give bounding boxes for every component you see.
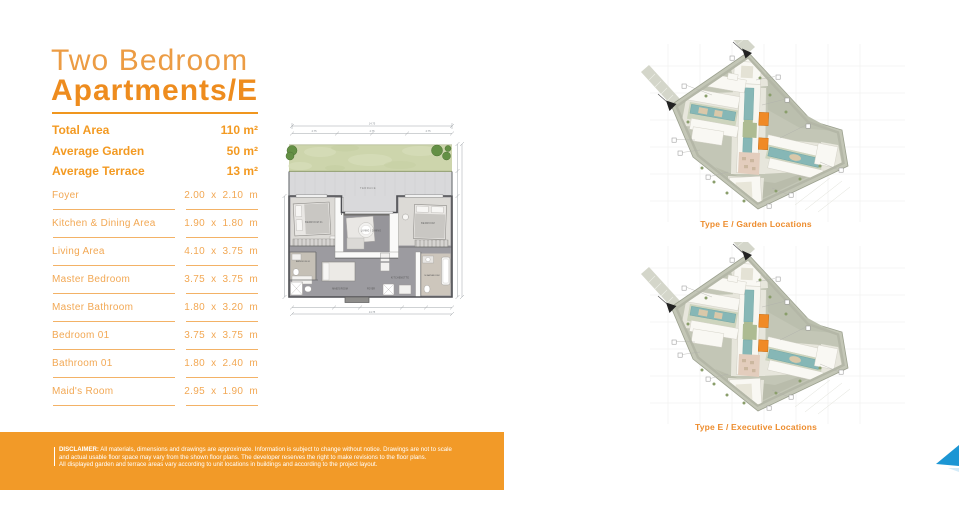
svg-text:4.75: 4.75 [311,129,317,133]
svg-text:BATHROOM 01: BATHROOM 01 [296,260,311,263]
svg-text:4.75: 4.75 [369,129,375,133]
svg-text:MAID'S ROOM: MAID'S ROOM [332,288,348,291]
svg-text:KITCHENETTE: KITCHENETTE [391,278,409,280]
svg-text:LIVING / DINING: LIVING / DINING [361,231,382,233]
svg-text:4.75: 4.75 [425,129,431,133]
svg-text:14.75: 14.75 [369,310,376,314]
svg-text:TERRACE: TERRACE [360,186,376,190]
svg-text:M BATHROOM: M BATHROOM [425,274,440,277]
svg-text:BEDROOM 01: BEDROOM 01 [305,221,323,224]
svg-text:FOYER: FOYER [367,289,375,291]
svg-text:14.75: 14.75 [369,122,376,126]
svg-text:BEDROOM: BEDROOM [421,222,435,225]
